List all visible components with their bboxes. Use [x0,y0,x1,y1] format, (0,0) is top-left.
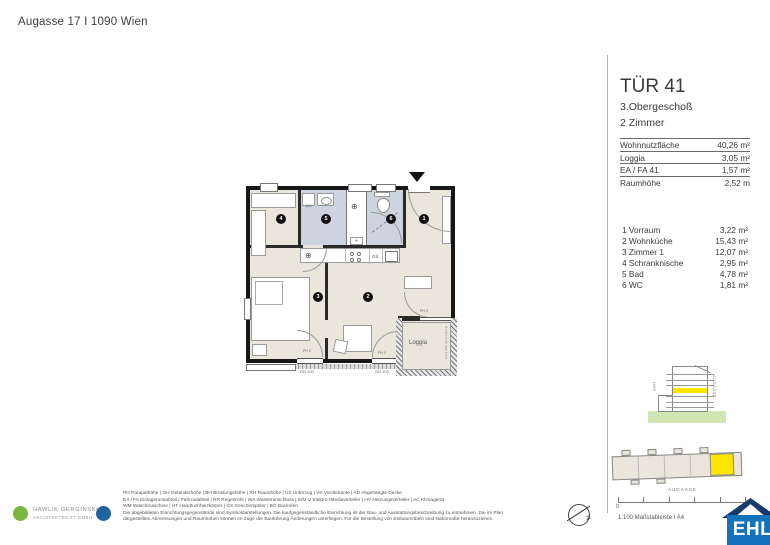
legend-line: PH Parapethöhe | GH Geländerhöhe | BH Br… [123,491,553,498]
floor-line [666,396,714,397]
ph-label-left: PH 0 [303,349,311,353]
room-value: 2,95 m² [720,258,748,268]
loggia-window [420,317,451,321]
architect-logo-blue-icon [96,506,111,521]
legend-line: WM Waschmaschine | HT Handtuchheizkörper… [123,504,553,511]
floor-line [666,380,714,381]
scale-tick [618,497,619,502]
augasse-site-label: AUGASSE [668,487,697,492]
legend-line: dargestellten Abmessungen und Raumhöhen … [123,517,553,524]
counter-divider [369,249,370,264]
room-label: 4 Schranknische [622,258,683,268]
site-bump [630,479,639,484]
metric-value: 2,52 m [725,178,750,188]
keyplan-site [611,444,748,489]
architect-subtitle: ARCHITEKTEN ZT GMBH [33,515,92,520]
washbasin-bowl [321,197,332,205]
metric-label: Wohnnutzfläche [620,140,679,150]
room-list-row: 5 Bad 4,78 m² [622,268,748,279]
cooktop-burner [350,252,354,256]
metric-value: 3,05 m² [722,153,750,163]
window-left-wall [244,298,251,320]
scale-tick [720,497,721,502]
room-value: 1,81 m² [720,280,748,290]
room-label: 1 Vorraum [622,225,660,235]
architect-logo-green-icon [13,506,28,521]
site-bump [647,449,656,455]
room-label: 3 Zimmer 1 [622,247,664,257]
wall-niche-2 [348,184,372,192]
site-bump [621,450,630,456]
washing-machine: WM [302,193,315,206]
dishwasher-label: GS [372,254,379,259]
metric-row: Loggia 3,05 m² [620,151,750,165]
wall-zimmer-stub [325,338,328,359]
wall-bad-left [298,190,301,245]
scale-tick [643,497,644,502]
scale-tick [745,497,746,502]
floor-line [666,374,714,375]
metric-label: Raumhöhe [620,178,661,188]
loggia-side-label: Senkrechtmarkise [444,326,448,360]
cooktop-burner [357,258,361,262]
nightstand [252,344,267,356]
unit-floor: 3.Obergeschoß [620,101,692,113]
water-connection-icon: ⊕ [351,202,358,211]
scale-caption: 1:100 Maßstableiste I A4 [618,515,684,521]
room-label: 5 Bad [622,269,644,279]
metric-label: Loggia [620,153,645,163]
room-number-1: 1 [419,214,429,224]
chair [333,339,348,354]
keyplan-elevation: HOF AUGASSE [646,362,728,424]
room-number-5: 5 [321,214,331,224]
washing-machine-label: WM [305,204,311,208]
room-number-4: 4 [276,214,286,224]
site-highlighted-unit [710,453,735,476]
metric-label: EA / FA 41 [620,165,659,175]
scale-tick [669,497,670,502]
room-list-row: 2 Wohnküche 15,43 m² [622,235,748,246]
metric-value: 1,57 m² [722,165,750,175]
metric-row: EA / FA 41 1,57 m² [620,163,750,177]
loggia-label: Loggia [409,340,427,346]
site-bump [673,448,682,454]
ledge [246,364,296,371]
legend-text: PH Parapethöhe | GH Geländerhöhe | BH Br… [123,491,553,524]
room-label: 2 Wohnküche [622,236,673,246]
scale-bar [618,502,745,503]
entrance-arrow-icon [409,172,425,182]
room-number-6: 6 [386,214,396,224]
wall-niche-1 [260,183,278,192]
highlighted-floor [673,388,707,393]
floor-line [666,407,714,408]
counter-divider [345,249,346,264]
wardrobe-top [251,193,296,208]
scale-zero-label: 0 [616,504,619,510]
room-list-row: 4 Schranknische 2,95 m² [622,257,748,268]
wardrobe-left [251,210,266,256]
floor-line [666,402,714,403]
scale-tick [694,497,695,502]
room-value: 15,43 m² [715,236,748,246]
ground-green [648,411,726,423]
room-number-3: 3 [313,292,323,302]
ph-label-right: PH 0 [378,351,386,355]
room-number-2: 2 [363,292,373,302]
project-address: Augasse 17 I 1090 Wien [18,16,148,28]
architect-name: HAWLIK GERGINSKI [33,507,98,513]
desk [343,325,372,352]
north-label: N [584,515,591,521]
oven [385,251,398,262]
ehl-logo: EHL [727,515,770,545]
augasse-side-label: AUGASSE [712,375,717,398]
toilet-cistern [374,192,390,197]
counter-divider [382,249,383,264]
metric-row: Wohnnutzfläche 40,26 m² [620,138,750,152]
hof-label: HOF [652,382,657,392]
washbasin [317,193,334,206]
room-list-row: 1 Vorraum 3,22 m² [622,224,748,235]
ph-label-loggia: PH 0 [420,309,428,313]
bed-pillow [255,281,283,305]
room-value: 4,78 m² [720,269,748,279]
gh-label-left: GH 100 [300,369,314,374]
room-value: 12,07 m² [715,247,748,257]
cooktop-burner [350,258,354,262]
sideboard [404,276,432,289]
radiator: + [350,237,363,245]
site-bump [656,479,665,484]
panel-divider [607,55,608,513]
room-label: 6 WC [622,280,643,290]
wall-niche-3 [376,184,396,192]
metric-value: 40,26 m² [717,140,750,150]
room-list-row: 6 WC 1,81 m² [622,279,748,290]
site-bump [699,447,708,453]
metric-row: Raumhöhe 2,52 m [620,176,750,190]
floor-line [666,385,714,386]
room-value: 3,22 m² [720,225,748,235]
loggia-wall-bottom [396,370,457,376]
loggia-wall-right [451,318,457,376]
room-list-row: 3 Zimmer 1 12,07 m² [622,246,748,257]
unit-title: TÜR 41 [620,76,685,98]
gh-label-right: GH 102 [375,369,389,374]
unit-room-count: 2 Zimmer [620,117,664,129]
cooktop-burner [357,252,361,256]
wall-vorraum-left [403,190,406,245]
